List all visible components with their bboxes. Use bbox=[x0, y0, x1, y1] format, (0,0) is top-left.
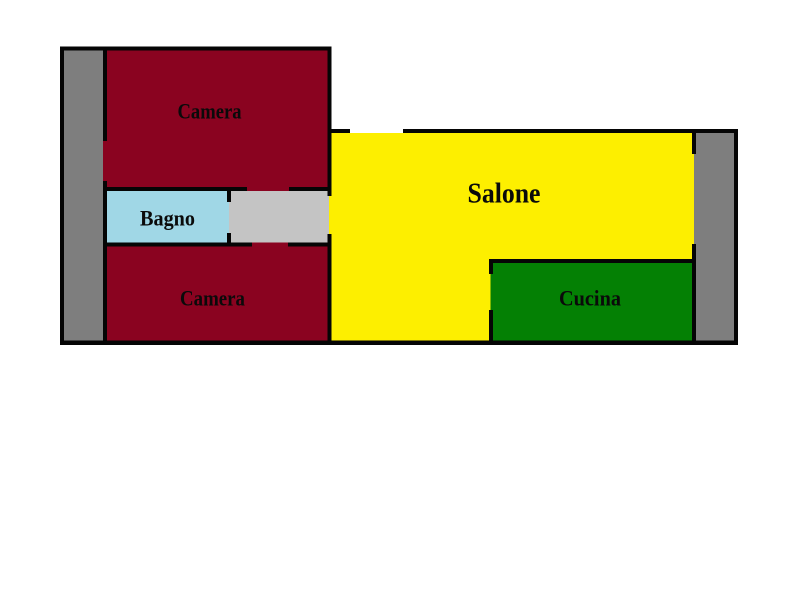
svg-text:Camera: Camera bbox=[180, 286, 245, 311]
svg-text:Cucina: Cucina bbox=[559, 286, 621, 311]
svg-text:Salone: Salone bbox=[468, 179, 541, 210]
svg-text:Bagno: Bagno bbox=[140, 206, 195, 231]
svg-text:Camera: Camera bbox=[178, 99, 242, 124]
